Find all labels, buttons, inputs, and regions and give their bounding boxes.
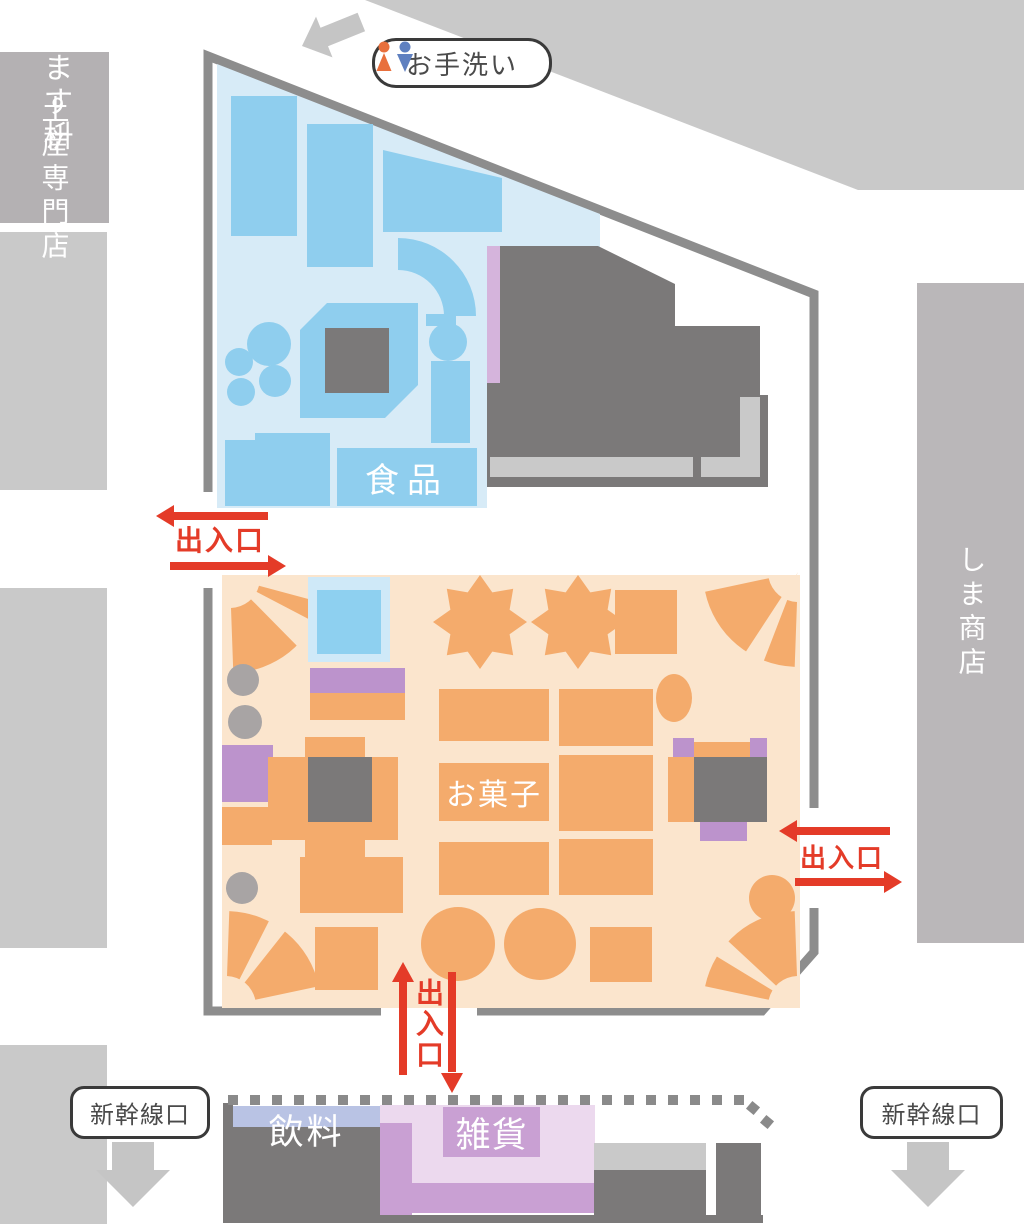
fixture-case (750, 738, 767, 757)
kiosk-frame (223, 1215, 763, 1223)
fixture-star-gondola (433, 575, 527, 669)
fixture-case (310, 668, 405, 693)
fixture-shelf (431, 361, 470, 443)
kiosk-shelf (594, 1170, 706, 1215)
fixture-shelf (559, 689, 653, 746)
entrance-label-south: 出入口 (410, 970, 446, 1078)
restroom-sign: お手洗い (372, 38, 552, 88)
fixture-round-table (749, 875, 795, 921)
fixture-shelf (439, 842, 549, 895)
fixture-shelf (300, 857, 403, 913)
column-pillar (325, 328, 389, 393)
fixture-round-table (259, 365, 291, 397)
goods-area-label: 雑貨 (443, 1107, 540, 1157)
fixture-shelf (225, 440, 330, 506)
restroom-persons-icon (375, 41, 415, 73)
fixture-shelf (559, 839, 653, 895)
shima-shop-label: しま商店 (917, 283, 1024, 943)
fixture-shelf (310, 693, 405, 720)
kiosk-shelf (716, 1143, 761, 1215)
shinkansen-arrow-down-icon (891, 1142, 965, 1207)
counter (740, 397, 760, 459)
fixture-case (673, 738, 694, 757)
dotted-boundary-dot (760, 1115, 774, 1129)
fixture-round-stand (226, 872, 258, 904)
fixture-case (222, 745, 273, 802)
fixture-oval-table (656, 674, 692, 722)
shinkansen-arrow-down-icon (96, 1142, 170, 1207)
goods-shelf (380, 1123, 412, 1215)
fixture-round-table (225, 348, 253, 376)
male-person-icon (400, 42, 411, 53)
fixture-shelf (590, 927, 652, 982)
fixture-round-table (429, 323, 467, 361)
fixture-shelf (315, 927, 378, 990)
fixture-shelf (231, 96, 297, 236)
fixture-shelf (559, 755, 653, 831)
goods-shelf (412, 1183, 595, 1213)
counter (701, 457, 760, 477)
female-person-icon (379, 42, 390, 53)
male-person-icon (397, 54, 413, 72)
counter (490, 457, 693, 477)
restroom-sign-label: お手洗い (406, 45, 518, 82)
souvenir-shop-label: 土産専門店 (0, 0, 107, 360)
entrance-label-west: 出入口 (172, 523, 268, 555)
fixture-round-table (247, 322, 291, 366)
fixture-round-table (227, 378, 255, 406)
shinkansen-gate-sign-east: 新幹線口 (860, 1086, 1003, 1139)
kiosk-frame (223, 1103, 233, 1223)
souvenir-shop-block (0, 588, 107, 948)
female-person-icon (377, 53, 392, 71)
restroom-direction-arrow-icon (294, 2, 370, 67)
backroom-area (487, 246, 768, 487)
station-shop-floor-map: 酒ます枡 土産専門店 しま商店 食品 お菓子 飲料 雑貨 出入口 出入口 出入口… (0, 0, 1024, 1224)
drinks-area-label: 飲料 (233, 1106, 380, 1152)
fixture-framed-stand-inner (317, 590, 381, 654)
fixture-round-stand (227, 664, 259, 696)
fixture-round-stand (228, 705, 262, 739)
dotted-boundary-dot (746, 1101, 760, 1115)
kiosk-counter (594, 1143, 706, 1170)
entrance-arrow-right-head (884, 871, 902, 893)
fixture-shelf (439, 689, 549, 741)
food-area-label: 食品 (337, 448, 477, 506)
fixture-shelf (222, 807, 272, 845)
fixture-round-table (504, 908, 576, 980)
fixture-shelf (307, 124, 373, 267)
fixture-case (700, 822, 747, 841)
column-pillar (694, 757, 767, 822)
column-pillar (308, 757, 372, 822)
fixture-shelf (694, 742, 750, 757)
fixture-shelf (615, 590, 677, 654)
fixture-shelf (668, 757, 694, 822)
floor-map-graphics (0, 0, 1024, 1224)
sweets-area-label: お菓子 (439, 763, 549, 821)
entrance-label-east: 出入口 (796, 841, 888, 871)
entrance-arrow-right-head (268, 555, 286, 577)
service-strip (487, 246, 500, 383)
shinkansen-gate-sign-west: 新幹線口 (70, 1086, 210, 1139)
fixture-star-gondola (531, 575, 625, 669)
